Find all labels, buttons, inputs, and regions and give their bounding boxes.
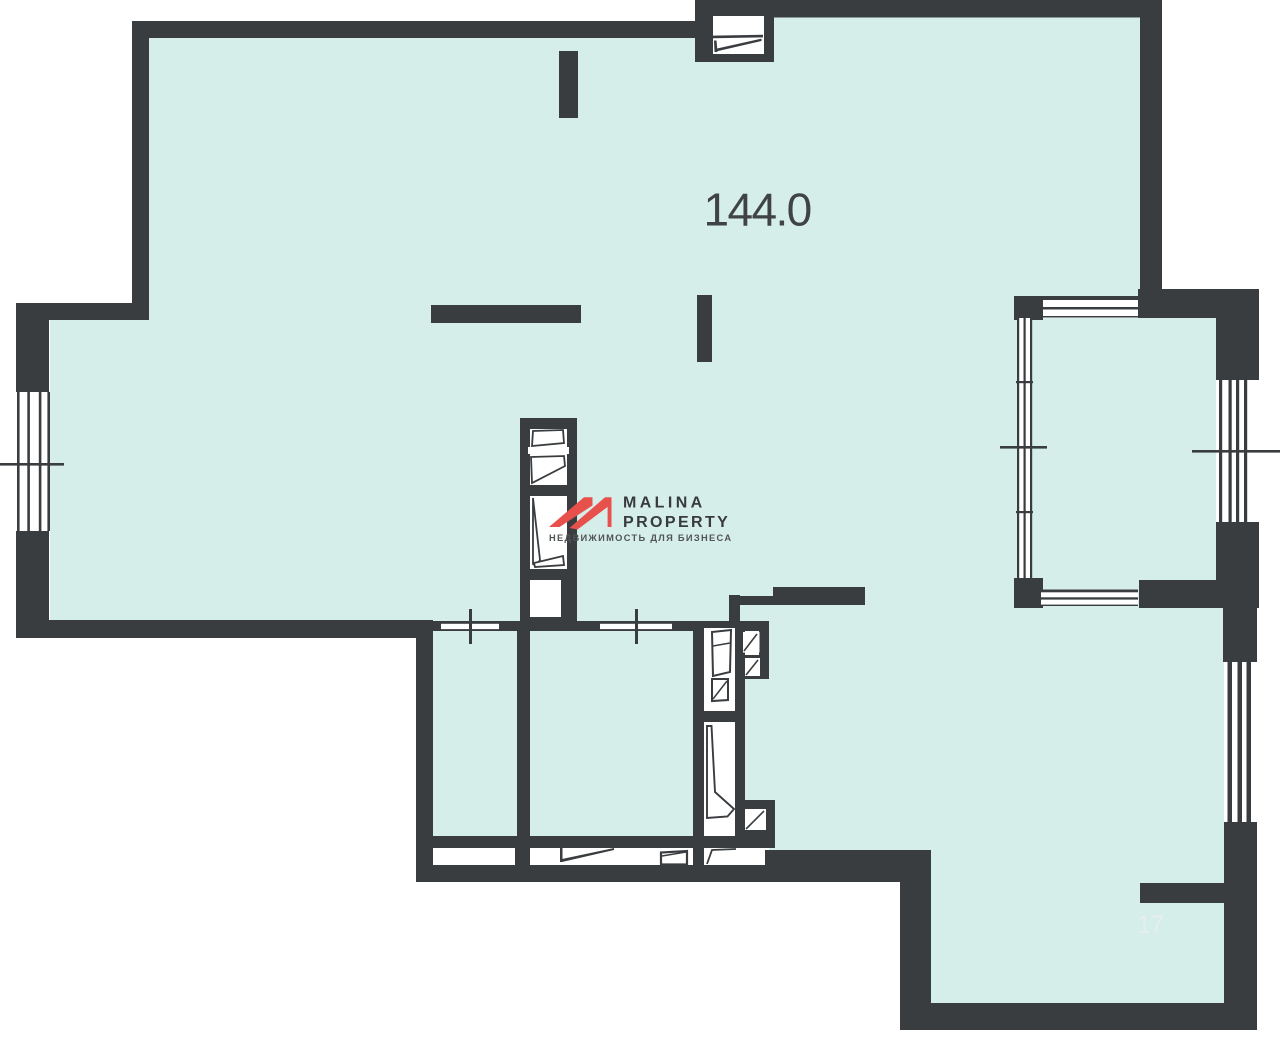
svg-text:MALINA: MALINA [623, 495, 706, 512]
svg-text:НЕДВИЖИМОСТЬ ДЛЯ БИЗНЕСА: НЕДВИЖИМОСТЬ ДЛЯ БИЗНЕСА [549, 533, 732, 543]
svg-text:144.0: 144.0 [704, 184, 811, 236]
svg-text:PROPERTY: PROPERTY [623, 514, 730, 531]
svg-text:17: 17 [1137, 911, 1163, 939]
